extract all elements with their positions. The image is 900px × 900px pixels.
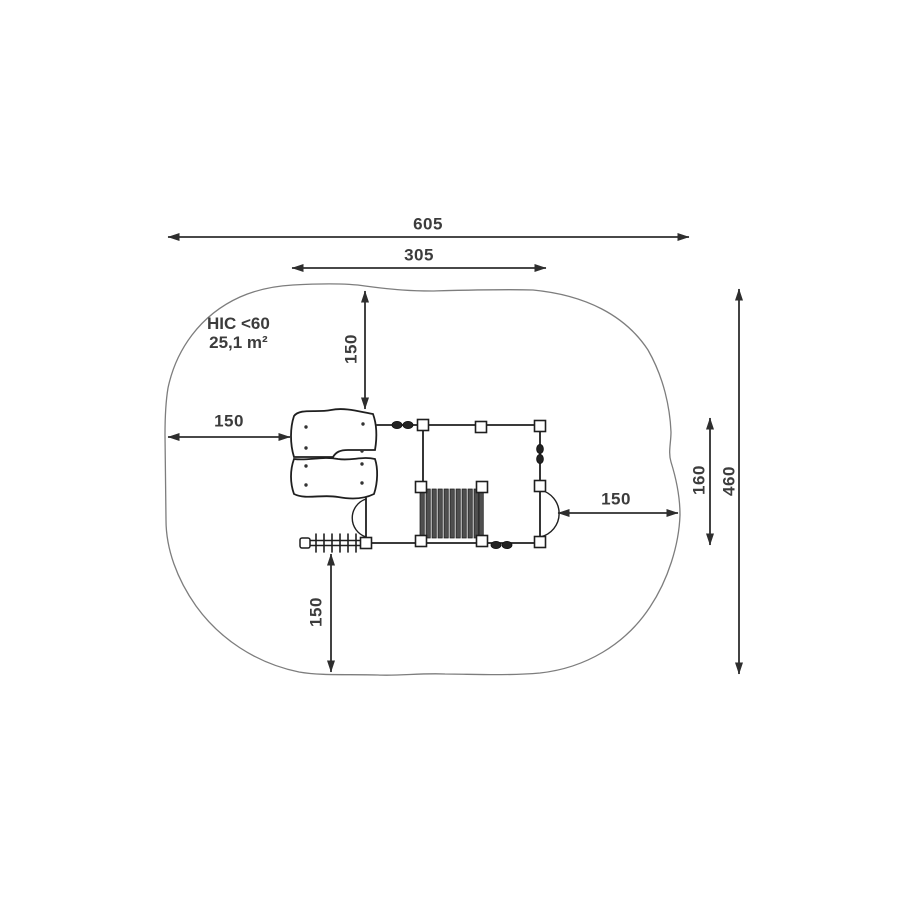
platform-panel-lower bbox=[291, 458, 377, 498]
dim-label-overall-height: 460 bbox=[721, 466, 738, 496]
dim-label-inner-width: 305 bbox=[404, 247, 434, 264]
hic-value: HIC <60 bbox=[207, 314, 270, 333]
area-value: 25,1 m² bbox=[207, 333, 270, 352]
dim-label-right-clearance: 150 bbox=[601, 491, 631, 508]
access-ladder bbox=[300, 534, 360, 552]
diagram-canvas: 605 305 150 150 150 160 460 150 HIC <60 … bbox=[0, 0, 900, 900]
dimension-lines bbox=[168, 237, 739, 674]
dim-label-bottom-clearance: 150 bbox=[308, 597, 325, 627]
climbing-net bbox=[420, 489, 483, 538]
plan-drawing bbox=[0, 0, 900, 900]
side-arc-left bbox=[352, 499, 366, 537]
dim-label-overall-width: 605 bbox=[413, 216, 443, 233]
platform-panel-upper bbox=[291, 409, 376, 457]
dim-label-side-height: 160 bbox=[691, 465, 708, 495]
hic-area-annotation: HIC <60 25,1 m² bbox=[207, 314, 270, 352]
dim-label-top-clearance: 150 bbox=[343, 334, 360, 364]
equipment-structure bbox=[291, 409, 559, 552]
side-arc-right bbox=[540, 490, 559, 537]
dim-label-left-clearance: 150 bbox=[214, 413, 244, 430]
